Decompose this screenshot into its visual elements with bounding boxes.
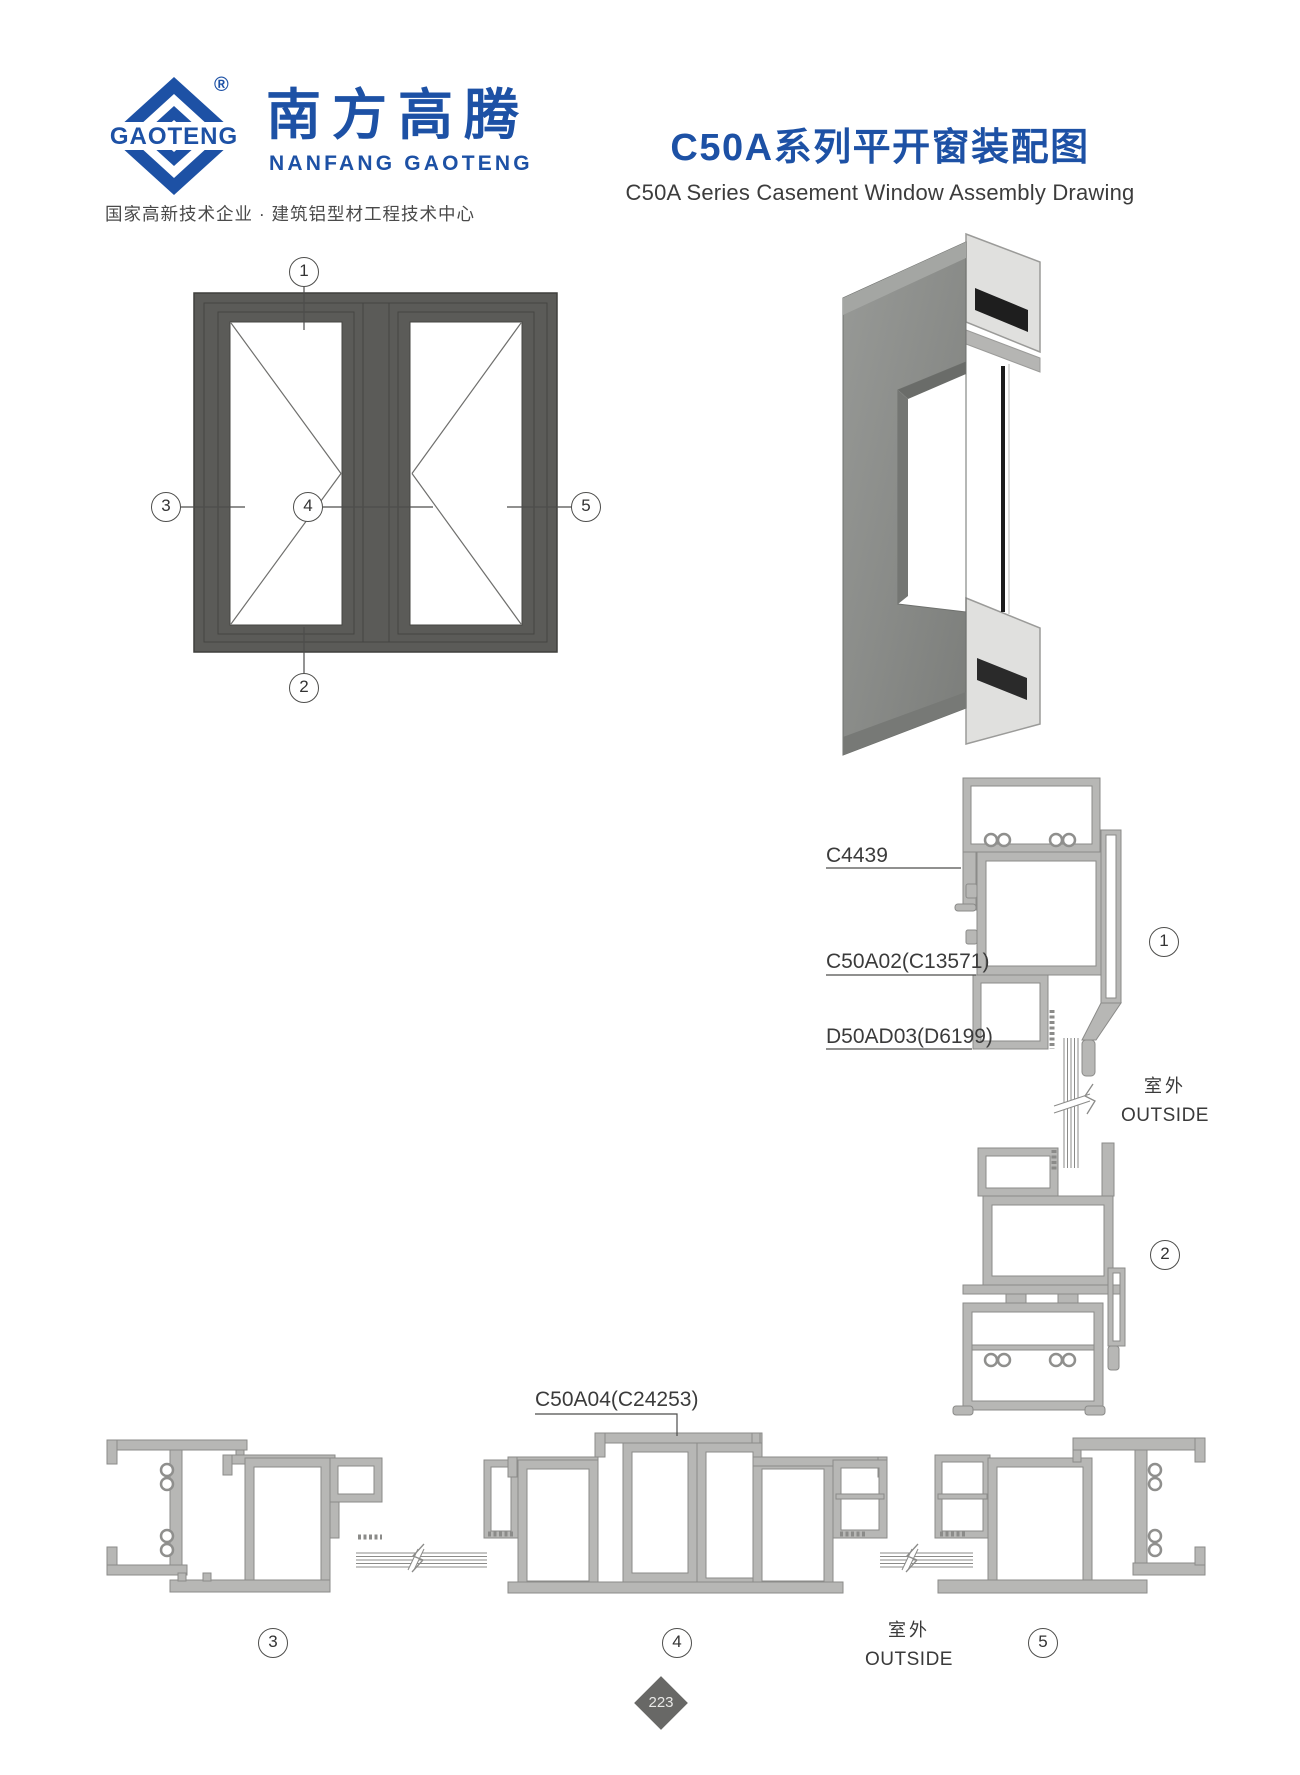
outside-en: OUTSIDE [1090,1105,1240,1127]
part-label-c50a04: C50A04(C24253) [535,1389,698,1410]
brand-name-en: NANFANG GAOTENG [269,153,533,174]
callout-section-3: 3 [258,1628,288,1658]
page-title-cn: C50A系列平开窗装配图 [550,128,1210,170]
callout-elevation-3: 3 [151,492,181,522]
frame-3d-render [843,234,1040,755]
part-label-d50ad03: D50AD03(D6199) [826,1026,993,1047]
callout-elevation-4: 4 [293,492,323,522]
callout-elevation-5: 5 [571,492,601,522]
part-label-c4439: C4439 [826,845,888,866]
brand-tagline: 国家高新技术企业 · 建筑铝型材工程技术中心 [105,201,475,226]
callout-section-1: 1 [1149,927,1179,957]
page-number: 223 [642,1684,680,1722]
outside-cn: 室外 [834,1616,984,1642]
vertical-section-sill [953,1143,1125,1415]
callout-elevation-1: 1 [289,257,319,287]
elevation-drawing [181,287,571,673]
outside-cn: 室外 [1090,1072,1240,1098]
drawing-canvas [0,0,1300,1775]
horizontal-section [107,1433,1205,1593]
title-block: C50A系列平开窗装配图 C50A Series Casement Window… [550,128,1210,206]
callout-section-2: 2 [1150,1240,1180,1270]
callout-elevation-2: 2 [289,673,319,703]
outside-note-vertical: 室外 OUTSIDE [1090,1072,1240,1127]
outside-en: OUTSIDE [834,1649,984,1671]
page-number-diamond: 223 [634,1676,688,1730]
part-label-c50a02: C50A02(C13571) [826,951,989,972]
callout-section-5: 5 [1028,1628,1058,1658]
registered-mark: ® [214,74,229,97]
brand-name-cn: 南方高腾 [266,88,530,143]
outside-note-horizontal: 室外 OUTSIDE [834,1616,984,1671]
callout-section-4: 4 [662,1628,692,1658]
page-title-en: C50A Series Casement Window Assembly Dra… [550,180,1210,206]
catalog-page: GAOTENG ® 南方高腾 NANFANG GAOTENG 国家高新技术企业 … [0,0,1300,1775]
svg-text:GAOTENG: GAOTENG [110,123,238,150]
